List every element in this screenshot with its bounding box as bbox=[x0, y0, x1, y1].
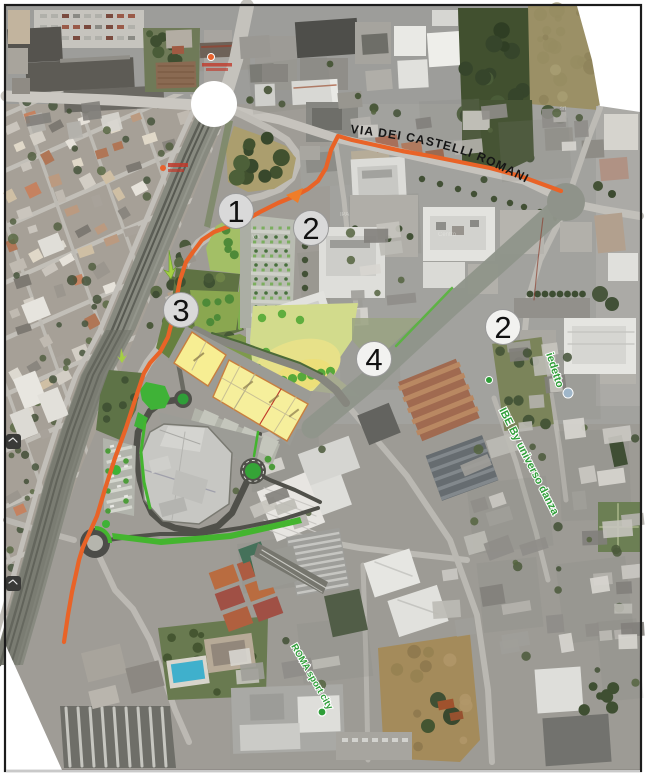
svg-text:Centro: Centro bbox=[438, 232, 457, 238]
svg-text:2: 2 bbox=[302, 211, 319, 246]
svg-text:4: 4 bbox=[365, 342, 382, 377]
svg-text:srl: srl bbox=[560, 106, 566, 112]
svg-text:via: via bbox=[252, 234, 260, 240]
svg-text:1: 1 bbox=[227, 194, 244, 229]
svg-text:2: 2 bbox=[494, 310, 511, 345]
svg-text:3: 3 bbox=[172, 293, 189, 328]
svg-text:IPA: IPA bbox=[340, 212, 349, 218]
